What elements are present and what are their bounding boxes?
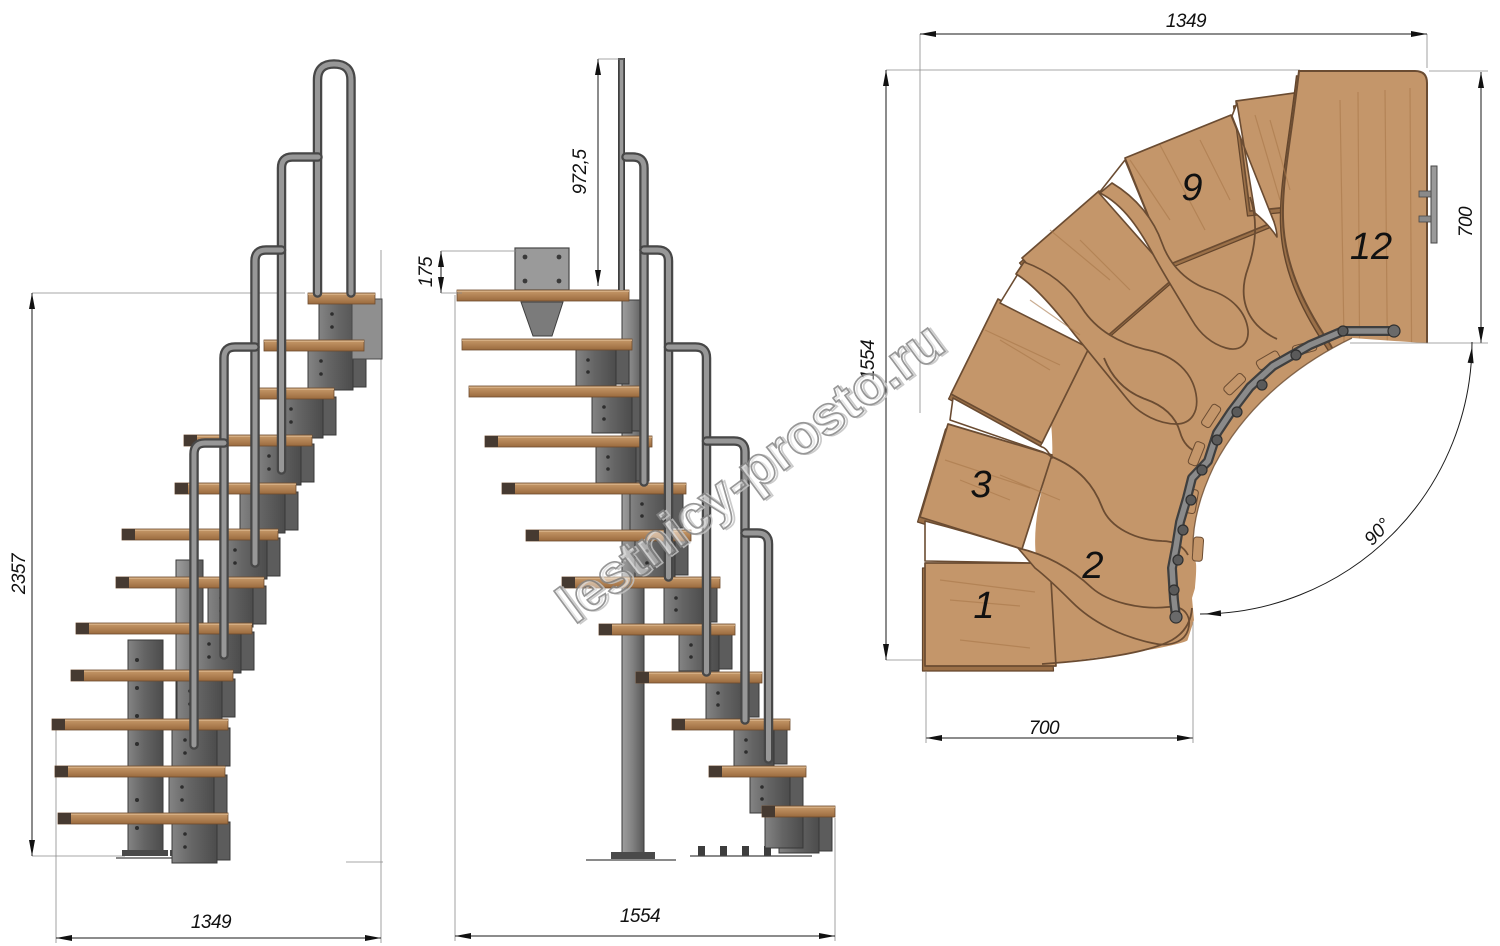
svg-text:175: 175 (416, 256, 437, 287)
svg-text:972,5: 972,5 (570, 149, 591, 195)
svg-text:700: 700 (1029, 718, 1060, 739)
svg-text:1554: 1554 (620, 906, 660, 927)
svg-text:2357: 2357 (9, 552, 30, 595)
svg-text:700: 700 (1456, 206, 1477, 237)
svg-text:3: 3 (970, 464, 991, 506)
svg-text:1349: 1349 (191, 912, 232, 933)
svg-text:1: 1 (973, 585, 994, 627)
svg-text:12: 12 (1350, 226, 1392, 268)
svg-text:1349: 1349 (1166, 11, 1207, 32)
svg-text:2: 2 (1081, 545, 1103, 587)
svg-text:9: 9 (1181, 167, 1202, 209)
